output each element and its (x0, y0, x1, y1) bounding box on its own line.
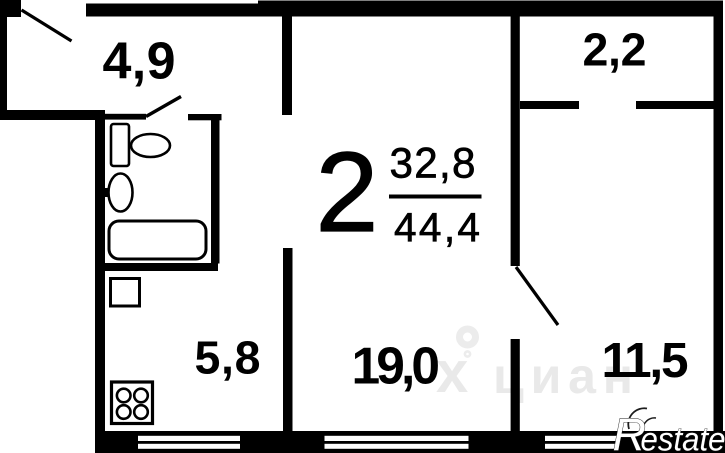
svg-text:2: 2 (316, 129, 379, 255)
svg-text:5,8: 5,8 (195, 331, 261, 383)
svg-text:2,2: 2,2 (583, 24, 647, 76)
svg-text:11,5: 11,5 (602, 333, 689, 388)
svg-text:32,8: 32,8 (390, 140, 476, 187)
svg-text:44,4: 44,4 (394, 205, 480, 251)
svg-text:4,9: 4,9 (103, 32, 176, 90)
svg-text:x: x (436, 340, 468, 405)
svg-text:19,0: 19,0 (352, 337, 441, 395)
svg-text:estate: estate (641, 421, 725, 453)
